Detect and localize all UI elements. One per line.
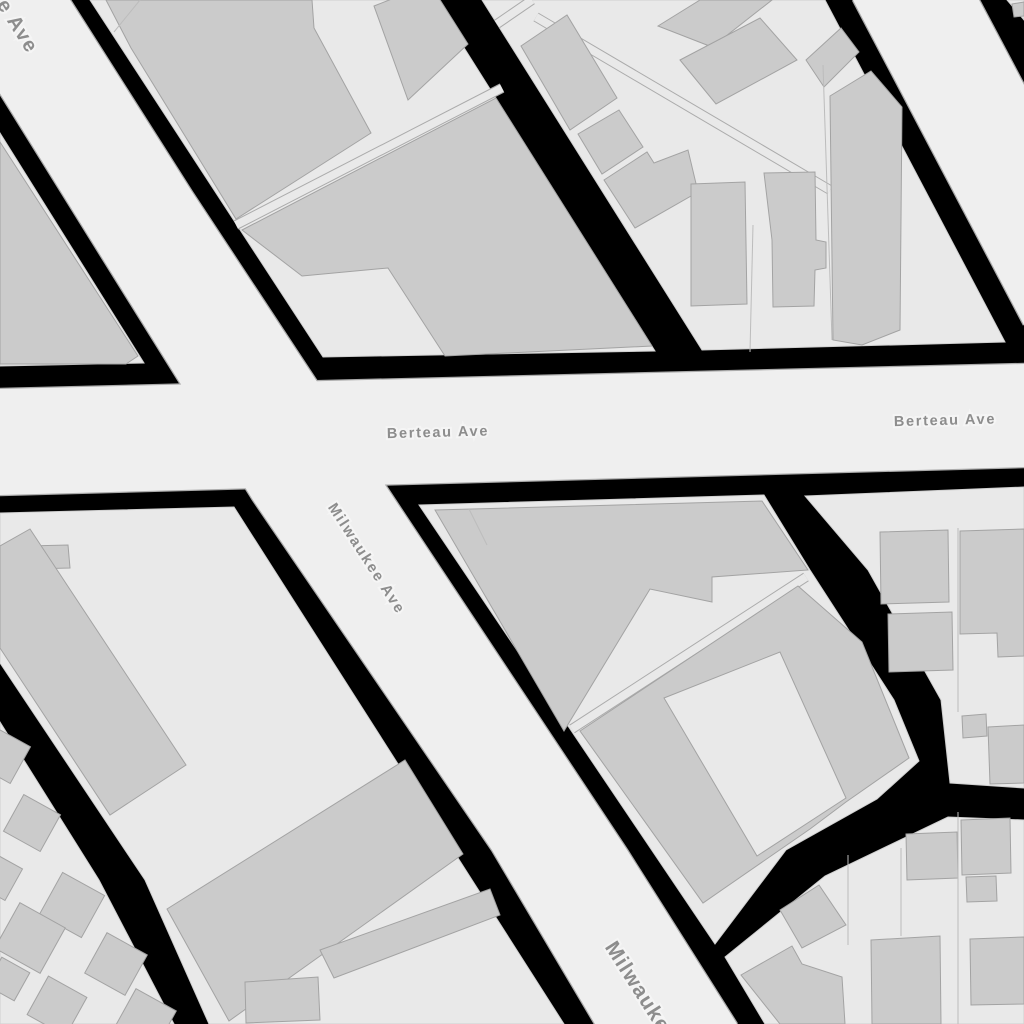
svg-text:Berteau Ave: Berteau Ave bbox=[387, 423, 490, 442]
svg-text:Berteau Ave: Berteau Ave bbox=[894, 411, 997, 430]
